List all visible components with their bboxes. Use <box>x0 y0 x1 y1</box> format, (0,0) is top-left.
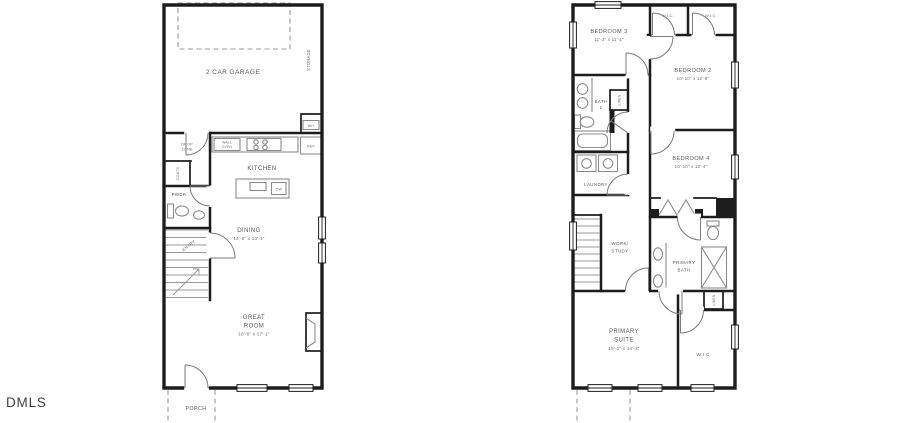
great-room-label-2: ROOM <box>244 324 264 330</box>
powder-door-opening <box>207 186 214 208</box>
window <box>732 155 739 179</box>
dining-label: DINING <box>237 228 260 234</box>
door-arc-bedroom4 <box>651 131 674 154</box>
bedroom3-dims: 11'-3" x 11'-1" <box>594 37 624 42</box>
coats-closet-label: COATS <box>176 166 180 180</box>
window <box>289 385 313 392</box>
bedroom2-label: BEDROOM 2 <box>674 68 711 74</box>
drop-zone-label-1: DROP <box>181 143 193 147</box>
powder-room-label: PWDR <box>172 192 187 197</box>
primary-bath-door-opening <box>678 214 702 221</box>
drop-zone-label-2: ZONE <box>181 148 193 152</box>
laundry-door-opening <box>625 174 632 195</box>
door-arc-wic3 <box>681 310 704 333</box>
window <box>691 385 714 392</box>
bath2-tub <box>575 131 611 151</box>
bay-window-seat <box>306 313 322 351</box>
wic3-door-opening <box>680 307 705 314</box>
work-study-door-opening <box>625 288 649 295</box>
primary-bath-label-2: BATH <box>678 268 691 273</box>
window <box>732 62 739 88</box>
bedroom4-door-opening <box>650 127 675 134</box>
primary-suite-label-2: SUITE <box>614 338 634 344</box>
primary-bath-toilet <box>707 221 719 240</box>
laundry-label: LAUNDRY <box>584 182 608 187</box>
great-room-dims: 18'-6" x 17'-1" <box>238 332 269 337</box>
second-floor-plan: BEDROOM 3 11'-3" x 11'-1" W.I.C. W.I.C. … <box>570 2 739 423</box>
bedroom2-door-opening <box>647 36 654 59</box>
linen2-label: LINEN <box>712 294 716 305</box>
wic2-door-opening <box>692 32 716 39</box>
window <box>570 22 577 48</box>
front-door-opening <box>184 384 209 391</box>
dining-dims: 14'-5" x 10'-1" <box>233 236 264 241</box>
bath2-sinks <box>577 78 592 112</box>
window <box>595 2 621 9</box>
roof-dashed-lines <box>577 390 630 423</box>
door-arc-bedroom2 <box>650 37 673 60</box>
primary-bath-sinks <box>654 243 667 291</box>
bedroom3-door-opening <box>626 72 649 79</box>
work-study-label-2: STUDY <box>612 249 629 254</box>
bedroom2-dims: 10'-10" x 12'-8" <box>677 76 710 81</box>
bath2-door-opening <box>625 112 632 133</box>
powder-toilet <box>168 204 189 218</box>
bath2-label-2: 2 <box>600 105 603 110</box>
bedroom3-label: BEDROOM 3 <box>590 29 627 35</box>
porch-label: PORCH <box>186 406 207 412</box>
bedroom4-closet-bifold <box>659 200 695 215</box>
watermark: DMLS <box>6 395 47 410</box>
water-heater-closet <box>301 114 322 131</box>
wall-oven-label-2: OVEN <box>222 145 233 149</box>
stairs <box>575 219 600 282</box>
door-arc-dining <box>210 233 235 258</box>
door-arc-work-study <box>626 268 649 291</box>
attic-storage-dashed-outline <box>178 3 290 49</box>
bedroom4-dims: 10'-10" x 12'-4" <box>675 164 708 169</box>
window <box>638 385 662 392</box>
primary-bath-shower <box>702 247 727 288</box>
storage-label: STORAGE <box>306 49 311 71</box>
stairs <box>166 230 208 298</box>
wic1-door-opening <box>652 32 676 39</box>
wic2-label: W.I.C. <box>705 13 717 18</box>
bedroom4-label: BEDROOM 4 <box>672 156 709 162</box>
powder-sink <box>194 211 205 219</box>
first-floor-plan: 2 CAR GARAGE STORAGE WH WALL OVEN REF KI… <box>164 3 325 423</box>
dryer <box>599 155 618 172</box>
dishwasher-label: DW <box>276 188 283 192</box>
second-floor-walls <box>573 5 735 388</box>
kitchen-label: KITCHEN <box>247 166 276 172</box>
linen1-label: LINEN <box>618 94 622 105</box>
bath2-label-1: BATH <box>595 99 607 104</box>
floor-plan-sheet: 2 CAR GARAGE STORAGE WH WALL OVEN REF KI… <box>0 0 900 423</box>
great-room-label-1: GREAT <box>243 315 265 321</box>
door-arc-primary-bath <box>678 217 701 240</box>
bath2-toilet <box>575 115 594 129</box>
window <box>237 385 267 392</box>
primary-suite-label-1: PRIMARY <box>609 329 639 335</box>
garage-label: 2 CAR GARAGE <box>206 69 260 76</box>
wic3-label: W.I.C. <box>697 352 712 357</box>
wic1-label: W.I.C. <box>662 13 674 18</box>
window <box>319 217 326 239</box>
window <box>588 385 612 392</box>
washer <box>577 155 596 172</box>
refrigerator-label: REF <box>307 145 315 149</box>
primary-bath-label-1: PRIMARY <box>673 260 696 265</box>
wall-oven-label-1: WALL <box>222 141 232 145</box>
primary-suite-door-opening <box>658 288 683 295</box>
garage-door-opening <box>184 130 209 137</box>
window <box>570 222 577 250</box>
entry-door-opening <box>207 233 214 259</box>
water-heater-label: WH <box>308 124 315 128</box>
entry-label: ENTRY <box>181 239 196 252</box>
work-study-label-1: WORK/ <box>612 241 629 246</box>
window <box>319 243 326 263</box>
window <box>732 325 739 349</box>
primary-suite-dims: 15'-1" x 14'-3" <box>608 346 639 351</box>
